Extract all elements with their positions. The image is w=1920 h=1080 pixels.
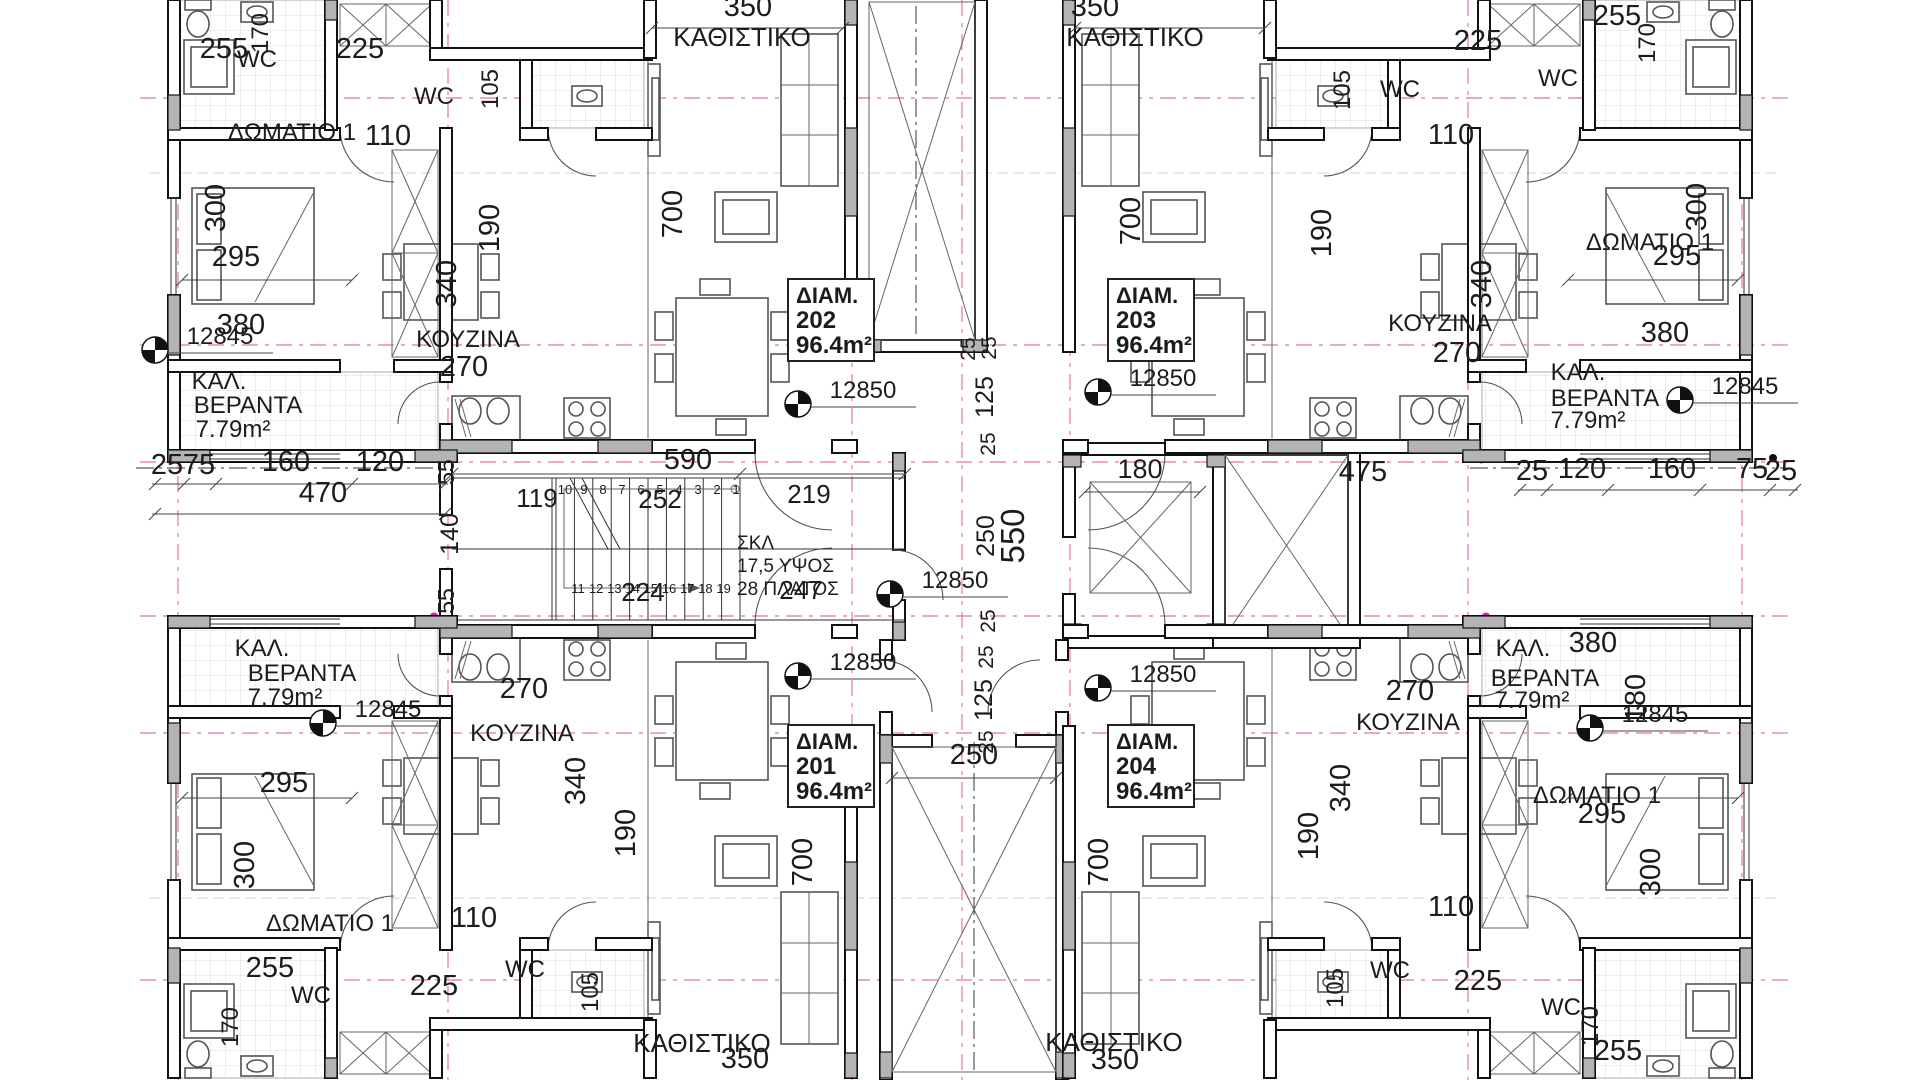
room-label: ΚΑΘΙΣΤΙΚΟ bbox=[1066, 22, 1204, 52]
wall-fill bbox=[1710, 616, 1752, 628]
dimension-label: 300 bbox=[200, 184, 232, 232]
stair-step-number: 10 bbox=[558, 482, 572, 497]
core-wall bbox=[892, 735, 932, 747]
room-label: ΚΑΛ. bbox=[1551, 359, 1606, 386]
dimension-label: 25 bbox=[1516, 455, 1548, 487]
washbasin-bowl bbox=[1653, 6, 1673, 18]
dimension-label: 55 bbox=[433, 588, 459, 614]
chair bbox=[1421, 760, 1439, 786]
level-value: 12850 bbox=[922, 567, 989, 594]
wall-fill bbox=[1740, 95, 1752, 130]
wall-fill bbox=[168, 948, 180, 983]
room-label: ΔΩΜΑΤΙΟ 1 bbox=[228, 119, 356, 146]
wall-fill bbox=[845, 862, 857, 950]
wall bbox=[520, 60, 532, 128]
core-wall bbox=[880, 712, 892, 735]
stair-step-number: 19 bbox=[716, 581, 730, 596]
dimension-label: 190 bbox=[1293, 812, 1325, 860]
chair bbox=[716, 643, 746, 659]
core-wall-fill bbox=[1063, 455, 1081, 467]
dimension-label: 252 bbox=[638, 484, 681, 514]
room-label: ΚΟΥΖΙΝΑ bbox=[416, 326, 520, 353]
wall-fill bbox=[168, 616, 210, 628]
wall bbox=[1580, 360, 1752, 372]
wall-fill bbox=[1063, 862, 1075, 950]
armchair bbox=[1151, 844, 1197, 878]
door-swing bbox=[1324, 128, 1372, 176]
wall-fill bbox=[845, 0, 857, 25]
apartment-tag-text: ΔΙΑΜ. bbox=[796, 283, 858, 308]
text-layer: ΔΙΑΜ.20296.4m²ΔΙΑΜ.20396.4m²ΔΙΑΜ.20196.4… bbox=[142, 0, 1798, 1076]
shower bbox=[1693, 47, 1729, 87]
room-label: ΔΩΜΑΤΙΟ 1 bbox=[266, 910, 394, 937]
burner bbox=[1337, 422, 1351, 436]
level-value: 12850 bbox=[1130, 365, 1197, 392]
room-label: WC bbox=[291, 982, 331, 1009]
wall-fill bbox=[168, 723, 180, 783]
chair bbox=[481, 292, 499, 318]
dimension-label: 25 bbox=[978, 336, 1001, 359]
apartment-tag-text: 96.4m² bbox=[1116, 778, 1192, 805]
stair-step-number: 13 bbox=[607, 581, 621, 596]
dimension-label: 295 bbox=[212, 241, 260, 273]
chair bbox=[655, 312, 673, 340]
dimension-label: 25 bbox=[151, 449, 183, 481]
dimension-label: 110 bbox=[365, 120, 411, 152]
door-swing bbox=[1526, 896, 1580, 950]
dimension-label: 470 bbox=[299, 477, 347, 509]
wall-fill bbox=[415, 616, 457, 628]
sink-bowl bbox=[1411, 398, 1433, 424]
apartment-tag-text: ΔΙΑΜ. bbox=[1116, 283, 1178, 308]
dimension-label: 25 bbox=[977, 609, 1000, 632]
wall-fill bbox=[1740, 295, 1752, 355]
dimension-label: 105 bbox=[577, 972, 604, 1012]
wall bbox=[1468, 696, 1480, 706]
dimension-label: 190 bbox=[1306, 209, 1338, 257]
dimension-label: 700 bbox=[787, 838, 819, 886]
door-swing bbox=[548, 902, 596, 950]
wall bbox=[1468, 372, 1480, 382]
stair-note: 17,5 ΥΨΟΣ bbox=[737, 556, 834, 577]
dimension-label: 190 bbox=[474, 204, 506, 252]
bed bbox=[197, 778, 221, 828]
dimension-label: 380 bbox=[1641, 317, 1689, 349]
level-marker-quadrant bbox=[1085, 688, 1098, 701]
dimension-label: 225 bbox=[1454, 25, 1502, 57]
room-label: ΚΑΛ. bbox=[235, 635, 290, 662]
stair-step-number: 8 bbox=[599, 482, 606, 497]
stair-step-number: 9 bbox=[580, 482, 587, 497]
floor-plan-drawing: ΔΙΑΜ.20296.4m²ΔΙΑΜ.20396.4m²ΔΙΑΜ.20196.4… bbox=[0, 0, 1920, 1080]
apartment-tag: ΔΙΑΜ.20296.4m² bbox=[788, 279, 874, 361]
wall-fill bbox=[1268, 440, 1322, 453]
dimension-label: 75 bbox=[1736, 453, 1768, 485]
level-value: 12845 bbox=[355, 696, 422, 723]
room-label: ΚΑΛ. bbox=[192, 368, 247, 395]
level-value: 12850 bbox=[830, 649, 897, 676]
dimension-label: 270 bbox=[440, 351, 488, 383]
level-marker-quadrant bbox=[1098, 379, 1111, 392]
wall bbox=[1463, 450, 1752, 462]
wall bbox=[1372, 128, 1400, 140]
chair bbox=[1247, 354, 1265, 382]
armchair bbox=[723, 200, 769, 234]
dimension-label: 247 bbox=[779, 575, 822, 605]
wall-fill bbox=[1268, 625, 1322, 638]
chair bbox=[1174, 419, 1204, 435]
wall-fill bbox=[325, 0, 337, 20]
dimension-label: 119 bbox=[516, 483, 557, 513]
wall bbox=[430, 1026, 442, 1078]
dimension-label: 219 bbox=[787, 479, 830, 509]
room-label: WC bbox=[1541, 994, 1581, 1021]
dimension-label: 380 bbox=[1569, 627, 1617, 659]
dimension-label: 300 bbox=[229, 841, 261, 889]
dimension-label: 170 bbox=[1634, 23, 1661, 63]
toilet bbox=[1711, 11, 1733, 37]
stair-step-number: 1 bbox=[732, 482, 739, 497]
burner bbox=[1315, 422, 1329, 436]
dimension-label: 295 bbox=[1653, 240, 1701, 272]
walls-layer bbox=[168, 0, 1752, 1078]
armchair bbox=[723, 844, 769, 878]
wall bbox=[430, 0, 442, 52]
wall bbox=[168, 616, 457, 628]
room-label: WC bbox=[1370, 957, 1410, 984]
stair-note: ΣΚΛ bbox=[737, 533, 774, 554]
core-wall bbox=[1056, 640, 1068, 660]
tv-bench bbox=[1261, 938, 1268, 1000]
chair bbox=[655, 738, 673, 766]
dimension-label: 110 bbox=[451, 902, 497, 934]
burner bbox=[569, 402, 583, 416]
apartment-tag-text: ΔΙΑΜ. bbox=[1116, 729, 1178, 754]
door-swing bbox=[548, 128, 596, 176]
wall bbox=[1165, 625, 1268, 638]
wall bbox=[596, 128, 652, 140]
chair bbox=[481, 254, 499, 280]
wall bbox=[1268, 938, 1324, 950]
burner bbox=[569, 662, 583, 676]
apartment-tag-text: 96.4m² bbox=[796, 778, 872, 805]
wall bbox=[1063, 625, 1088, 638]
armchair bbox=[1151, 200, 1197, 234]
apartment-tag-text: 201 bbox=[796, 753, 836, 780]
dimension-label: 25 bbox=[975, 645, 998, 668]
dimension-label: 475 bbox=[1339, 456, 1387, 488]
wall bbox=[440, 696, 452, 706]
dimension-label: 380 bbox=[217, 309, 265, 341]
burner bbox=[591, 402, 605, 416]
dimension-label: 550 bbox=[994, 508, 1031, 563]
wall-fills-layer bbox=[168, 0, 1752, 1078]
dimension-label: 55 bbox=[433, 459, 459, 485]
dining-table bbox=[676, 662, 768, 780]
chair bbox=[1247, 312, 1265, 340]
tv-bench bbox=[652, 938, 659, 1000]
toilet-tank bbox=[1709, 1068, 1735, 1078]
dimension-label: 270 bbox=[1386, 675, 1434, 707]
toilet bbox=[1711, 1041, 1733, 1067]
dimension-label: 125 bbox=[971, 376, 999, 418]
room-label: ΒΕΡΑΝΤΑ bbox=[248, 660, 356, 687]
toilet-tank bbox=[1709, 0, 1735, 10]
level-value: 12850 bbox=[830, 377, 897, 404]
burner bbox=[569, 422, 583, 436]
wall-fill bbox=[1463, 450, 1505, 462]
dimension-label: 7.79m² bbox=[1495, 687, 1570, 714]
dimension-label: 105 bbox=[1329, 70, 1356, 110]
wall bbox=[832, 440, 857, 453]
dimension-label: 170 bbox=[247, 13, 274, 53]
dimension-label: 25 bbox=[1765, 455, 1797, 487]
sink-bowl bbox=[487, 398, 509, 424]
stair-step-number: 2 bbox=[713, 482, 720, 497]
dimension-label: 190 bbox=[610, 809, 642, 857]
toilet-tank bbox=[185, 0, 211, 10]
floor-plan-canvas: ΔΙΑΜ.20296.4m²ΔΙΑΜ.20396.4m²ΔΙΑΜ.20196.4… bbox=[0, 0, 1920, 1080]
chair bbox=[1247, 738, 1265, 766]
dimension-label: 225 bbox=[1454, 965, 1502, 997]
dimension-label: 340 bbox=[1325, 764, 1357, 812]
tile-layer bbox=[180, 0, 1740, 1078]
wall bbox=[520, 938, 548, 950]
room-label: WC bbox=[1380, 76, 1420, 103]
level-marker-quadrant bbox=[798, 663, 811, 676]
tv-bench bbox=[1261, 78, 1268, 140]
burner bbox=[591, 642, 605, 656]
level-marker-quadrant bbox=[1085, 392, 1098, 405]
wall bbox=[596, 938, 652, 950]
room-label: ΚΟΥΖΙΝΑ bbox=[1356, 709, 1460, 736]
dimension-label: 225 bbox=[410, 970, 458, 1002]
stair-step-number: 3 bbox=[694, 482, 701, 497]
chair bbox=[716, 419, 746, 435]
room-label: WC bbox=[505, 956, 545, 983]
dimension-label: 7.79m² bbox=[1551, 407, 1626, 434]
bed bbox=[1699, 834, 1723, 884]
dimension-label: 120 bbox=[1558, 453, 1606, 485]
dimension-label: 170 bbox=[217, 1007, 244, 1047]
level-marker-quadrant bbox=[890, 581, 903, 594]
burner bbox=[1315, 402, 1329, 416]
apartment-tag-text: 96.4m² bbox=[796, 332, 872, 359]
dimension-label: 250 bbox=[950, 739, 998, 771]
level-marker: 12850 bbox=[785, 649, 916, 689]
dimension-label: 350 bbox=[1071, 0, 1119, 23]
wall bbox=[1165, 440, 1268, 453]
wall-fill bbox=[598, 440, 652, 453]
level-marker-quadrant bbox=[310, 723, 323, 736]
furniture-layer bbox=[184, 0, 1736, 1078]
dimension-label: 350 bbox=[1091, 1044, 1139, 1076]
level-marker-quadrant bbox=[798, 391, 811, 404]
level-marker: 12850 bbox=[877, 567, 1008, 607]
dimension-label: 295 bbox=[1578, 798, 1626, 830]
apartment-tag: ΔΙΑΜ.20496.4m² bbox=[1108, 725, 1194, 807]
stair-step-number: 12 bbox=[589, 581, 603, 596]
wall bbox=[652, 625, 755, 638]
room-label: WC bbox=[1538, 65, 1578, 92]
wall bbox=[1063, 440, 1088, 453]
dimension-label: 7.79m² bbox=[196, 416, 271, 443]
wall bbox=[832, 625, 857, 638]
wall bbox=[430, 48, 652, 60]
wall bbox=[520, 128, 548, 140]
dimension-label: 105 bbox=[1322, 968, 1349, 1008]
dimension-label: 340 bbox=[431, 260, 463, 308]
chair bbox=[1131, 696, 1149, 724]
level-marker: 12850 bbox=[785, 377, 916, 417]
burner bbox=[569, 642, 583, 656]
sink-bowl bbox=[1439, 654, 1461, 680]
burner bbox=[1337, 402, 1351, 416]
dimension-label: 180 bbox=[1117, 454, 1162, 484]
level-marker-quadrant bbox=[142, 350, 155, 363]
dimension-label: 295 bbox=[260, 767, 308, 799]
bed bbox=[1699, 250, 1723, 300]
burner bbox=[1337, 662, 1351, 676]
stair-step-number: 17 bbox=[680, 581, 694, 596]
core-wall-fill bbox=[880, 1052, 892, 1078]
chair bbox=[1247, 696, 1265, 724]
chair bbox=[1421, 254, 1439, 280]
wall-fill bbox=[845, 1053, 857, 1078]
core-wall bbox=[880, 735, 892, 1080]
wall-fill bbox=[598, 625, 652, 638]
core-wall bbox=[1213, 455, 1225, 648]
dimension-label: 700 bbox=[657, 190, 689, 238]
dimension-label: 340 bbox=[1466, 260, 1498, 308]
core-wall bbox=[975, 0, 987, 352]
dimension-label: 7.79m² bbox=[248, 684, 323, 711]
wall-fill bbox=[1463, 616, 1505, 628]
dimension-label: 300 bbox=[1635, 848, 1667, 896]
wall bbox=[1580, 938, 1752, 950]
apartment-tag-text: 203 bbox=[1116, 307, 1156, 334]
room-label: ΚΟΥΖΙΝΑ bbox=[1388, 310, 1492, 337]
dimension-label: 270 bbox=[500, 673, 548, 705]
dimension-label: 224 bbox=[621, 577, 664, 607]
level-marker-quadrant bbox=[155, 337, 168, 350]
stair-step-number: 11 bbox=[571, 581, 585, 596]
chair bbox=[700, 783, 730, 799]
chair bbox=[700, 279, 730, 295]
chair bbox=[771, 696, 789, 724]
dimension-label: 590 bbox=[664, 444, 712, 476]
dimension-label: 225 bbox=[336, 33, 384, 65]
wall bbox=[1264, 1020, 1276, 1078]
apartment-tag-text: 96.4m² bbox=[1116, 332, 1192, 359]
wall-fill bbox=[1740, 948, 1752, 983]
dimension-label: 110 bbox=[1428, 891, 1474, 923]
toilet bbox=[187, 1041, 209, 1067]
chair bbox=[655, 354, 673, 382]
level-value: 12845 bbox=[1712, 373, 1779, 400]
dimension-label: 255 bbox=[246, 952, 294, 984]
wall-fill bbox=[168, 295, 180, 355]
core-wall-fill bbox=[880, 735, 892, 763]
wall-fill bbox=[845, 128, 857, 216]
dimension-label: 700 bbox=[1115, 197, 1147, 245]
dimension-label: 270 bbox=[1433, 337, 1481, 369]
burner bbox=[591, 422, 605, 436]
wall bbox=[1372, 938, 1400, 950]
wall bbox=[168, 938, 340, 950]
dimension-label: 120 bbox=[356, 446, 404, 478]
dimension-label: 160 bbox=[262, 446, 310, 478]
room-label: WC bbox=[414, 83, 454, 110]
stair-step-number: 7 bbox=[618, 482, 625, 497]
washbasin-bowl bbox=[247, 1060, 267, 1072]
sink-bowl bbox=[459, 398, 481, 424]
dimension-label: 25 bbox=[977, 432, 1000, 455]
level-marker-quadrant bbox=[785, 676, 798, 689]
toilet-tank bbox=[185, 1068, 211, 1078]
core-layer bbox=[440, 0, 1360, 1080]
door-swing bbox=[1324, 902, 1372, 950]
dimension-label: 110 bbox=[1428, 119, 1474, 151]
level-marker-quadrant bbox=[1098, 675, 1111, 688]
burner bbox=[591, 662, 605, 676]
chair bbox=[481, 798, 499, 824]
core-wall-fill bbox=[893, 622, 905, 640]
dimension-label: 350 bbox=[721, 1043, 769, 1075]
level-value: 12850 bbox=[1130, 661, 1197, 688]
wall-fill bbox=[1740, 723, 1752, 783]
shower bbox=[1693, 991, 1729, 1031]
stair-step-number: 18 bbox=[698, 581, 712, 596]
wall bbox=[1264, 0, 1276, 58]
chair bbox=[1421, 798, 1439, 824]
dimension-label: 25 bbox=[957, 337, 980, 360]
chair bbox=[481, 760, 499, 786]
dimension-label: 105 bbox=[477, 69, 504, 109]
apartment-tag-text: 204 bbox=[1116, 753, 1157, 780]
wall-fill bbox=[1063, 128, 1075, 216]
chair bbox=[771, 354, 789, 382]
wall bbox=[430, 1018, 652, 1030]
wall bbox=[644, 0, 656, 58]
tv-bench bbox=[652, 78, 659, 140]
dimension-label: 700 bbox=[1083, 838, 1115, 886]
bed bbox=[1699, 778, 1723, 828]
chair bbox=[771, 738, 789, 766]
chair bbox=[655, 696, 673, 724]
room-label: ΚΑΛ. bbox=[1496, 635, 1551, 662]
door-swing bbox=[1526, 128, 1580, 182]
dimension-label: 300 bbox=[1681, 183, 1713, 231]
dimension-label: 255 bbox=[1594, 1035, 1642, 1067]
wall bbox=[1478, 1026, 1490, 1078]
dining-table bbox=[676, 298, 768, 416]
wc2-basin-bowl bbox=[577, 90, 597, 102]
dimension-label: 350 bbox=[724, 0, 772, 23]
core-wall-fill bbox=[893, 453, 905, 471]
core-wall-fill bbox=[1207, 455, 1225, 467]
wall bbox=[1268, 128, 1324, 140]
apartment-tag: ΔΙΑΜ.20196.4m² bbox=[788, 725, 874, 807]
level-marker-quadrant bbox=[877, 594, 890, 607]
washbasin-bowl bbox=[1653, 1060, 1673, 1072]
chair bbox=[771, 312, 789, 340]
dimension-label: 140 bbox=[436, 513, 464, 555]
apartment-tag-text: ΔΙΑΜ. bbox=[796, 729, 858, 754]
dimension-label: 160 bbox=[1648, 453, 1696, 485]
apartment-tag-text: 202 bbox=[796, 307, 836, 334]
apartment-tag: ΔΙΑΜ.20396.4m² bbox=[1108, 279, 1194, 361]
